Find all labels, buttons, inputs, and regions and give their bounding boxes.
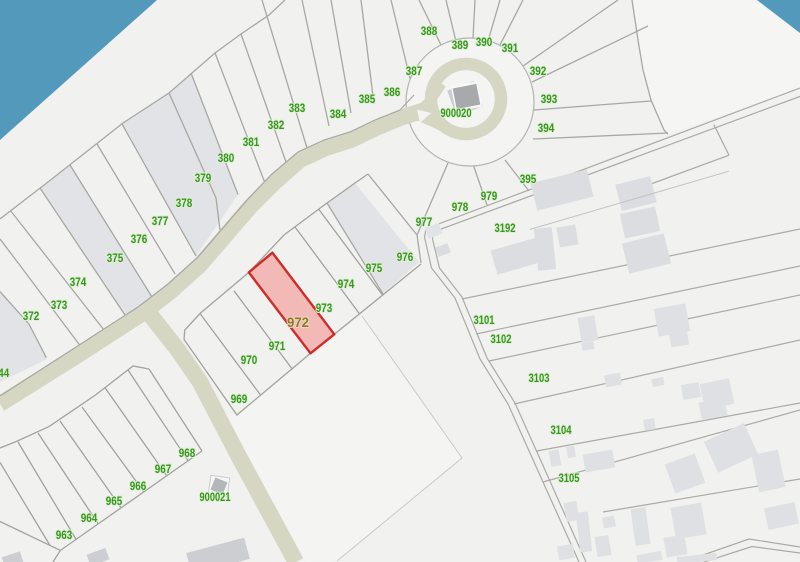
svg-text:3104: 3104: [551, 425, 572, 437]
svg-text:967: 967: [155, 464, 172, 476]
svg-text:385: 385: [359, 94, 376, 106]
svg-text:374: 374: [70, 277, 87, 289]
svg-text:973: 973: [316, 303, 333, 315]
svg-text:383: 383: [289, 103, 306, 115]
svg-text:389: 389: [452, 40, 469, 52]
svg-text:387: 387: [406, 66, 423, 78]
svg-text:3105: 3105: [559, 473, 580, 485]
svg-text:3102: 3102: [491, 334, 512, 346]
svg-text:392: 392: [530, 66, 547, 78]
svg-text:964: 964: [81, 513, 98, 525]
svg-text:394: 394: [538, 123, 555, 135]
svg-text:3192: 3192: [495, 223, 516, 235]
svg-text:971: 971: [269, 341, 286, 353]
svg-text:395: 395: [520, 174, 537, 186]
svg-text:380: 380: [218, 153, 235, 165]
svg-text:377: 377: [152, 216, 169, 228]
svg-text:970: 970: [241, 355, 258, 367]
svg-text:977: 977: [416, 217, 433, 229]
svg-text:386: 386: [384, 87, 401, 99]
svg-text:382: 382: [268, 120, 285, 132]
svg-text:978: 978: [452, 202, 469, 214]
svg-text:968: 968: [179, 448, 196, 460]
svg-text:372: 372: [23, 311, 40, 323]
svg-text:975: 975: [366, 263, 383, 275]
svg-text:381: 381: [243, 137, 260, 149]
svg-text:3103: 3103: [529, 373, 550, 385]
svg-text:963: 963: [56, 530, 73, 542]
svg-text:390: 390: [476, 37, 493, 49]
svg-text:144: 144: [0, 368, 10, 380]
svg-text:388: 388: [421, 26, 438, 38]
svg-text:965: 965: [106, 496, 123, 508]
svg-text:391: 391: [502, 43, 519, 55]
svg-text:976: 976: [397, 252, 414, 264]
svg-text:3101: 3101: [474, 315, 495, 327]
svg-text:376: 376: [131, 234, 148, 246]
svg-text:375: 375: [107, 253, 124, 265]
svg-text:378: 378: [176, 198, 193, 210]
svg-text:900021: 900021: [200, 492, 231, 504]
svg-text:974: 974: [338, 279, 355, 291]
svg-text:979: 979: [481, 191, 498, 203]
svg-text:373: 373: [51, 300, 68, 312]
svg-text:379: 379: [195, 173, 212, 185]
svg-text:900020: 900020: [441, 108, 472, 120]
svg-text:384: 384: [330, 109, 347, 121]
svg-text:972: 972: [287, 315, 309, 330]
svg-text:966: 966: [130, 481, 147, 493]
svg-text:393: 393: [541, 94, 558, 106]
svg-text:969: 969: [231, 394, 248, 406]
